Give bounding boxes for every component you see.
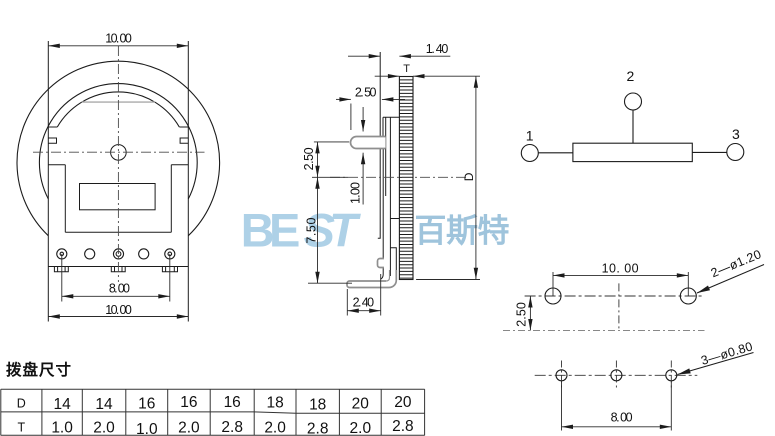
svg-text:2.50: 2.50	[302, 147, 316, 170]
svg-text:1.0: 1.0	[51, 419, 73, 436]
svg-text:2: 2	[627, 68, 635, 84]
svg-text:10. 00: 10. 00	[602, 262, 639, 276]
svg-text:2.0: 2.0	[350, 420, 372, 436]
svg-text:16: 16	[138, 396, 155, 413]
svg-text:2.8: 2.8	[392, 418, 414, 435]
svg-text:拨盘尺寸: 拨盘尺寸	[6, 360, 72, 379]
svg-text:T: T	[403, 63, 410, 75]
svg-text:1.0: 1.0	[136, 421, 158, 436]
svg-text:14: 14	[53, 396, 71, 413]
svg-text:20: 20	[394, 394, 412, 411]
svg-text:2.0: 2.0	[178, 419, 200, 436]
svg-text:7.50: 7.50	[305, 218, 319, 244]
svg-text:2.8: 2.8	[307, 420, 329, 436]
svg-text:3: 3	[732, 126, 740, 142]
svg-text:8. 00: 8. 00	[109, 282, 130, 296]
svg-text:16: 16	[180, 394, 197, 411]
svg-text:2.8: 2.8	[221, 419, 243, 436]
svg-text:2.0: 2.0	[264, 419, 286, 436]
svg-text:20: 20	[352, 396, 370, 413]
svg-text:2. 40: 2. 40	[353, 295, 375, 309]
svg-text:D: D	[462, 172, 476, 181]
svg-text:2.0: 2.0	[93, 419, 115, 436]
svg-text:1.00: 1.00	[349, 182, 363, 204]
svg-text:百斯特: 百斯特	[415, 213, 510, 249]
svg-text:18: 18	[266, 395, 283, 412]
svg-text:14: 14	[95, 396, 113, 413]
svg-text:10. 00: 10. 00	[105, 303, 132, 317]
svg-text:2. 50: 2. 50	[355, 85, 377, 99]
svg-text:16: 16	[224, 394, 241, 411]
svg-text:2.50: 2.50	[515, 302, 529, 327]
svg-text:D: D	[17, 397, 26, 411]
svg-text:1. 40: 1. 40	[426, 42, 449, 56]
svg-text:18: 18	[309, 397, 326, 414]
svg-text:10. 00: 10. 00	[105, 32, 132, 46]
svg-text:8. 00: 8. 00	[611, 410, 633, 424]
svg-text:1: 1	[526, 128, 534, 144]
svg-text:T: T	[17, 421, 25, 435]
svg-text:BE: BE	[241, 203, 300, 256]
